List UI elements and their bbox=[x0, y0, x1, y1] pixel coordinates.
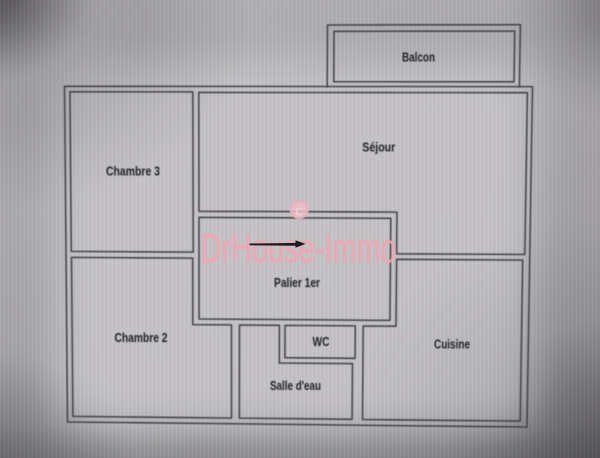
svg-text:WC: WC bbox=[313, 334, 330, 349]
svg-text:Balcon: Balcon bbox=[402, 50, 435, 65]
svg-text:Cuisine: Cuisine bbox=[434, 336, 470, 351]
svg-text:c: c bbox=[296, 202, 304, 219]
svg-text:Salle d'eau: Salle d'eau bbox=[270, 378, 321, 393]
svg-text:Séjour: Séjour bbox=[362, 140, 395, 155]
svg-text:Chambre 2: Chambre 2 bbox=[115, 330, 168, 345]
svg-text:Palier 1er: Palier 1er bbox=[274, 275, 320, 290]
svg-text:Chambre 3: Chambre 3 bbox=[106, 163, 160, 178]
svg-text:DrHouse-Immo: DrHouse-Immo bbox=[201, 225, 397, 272]
